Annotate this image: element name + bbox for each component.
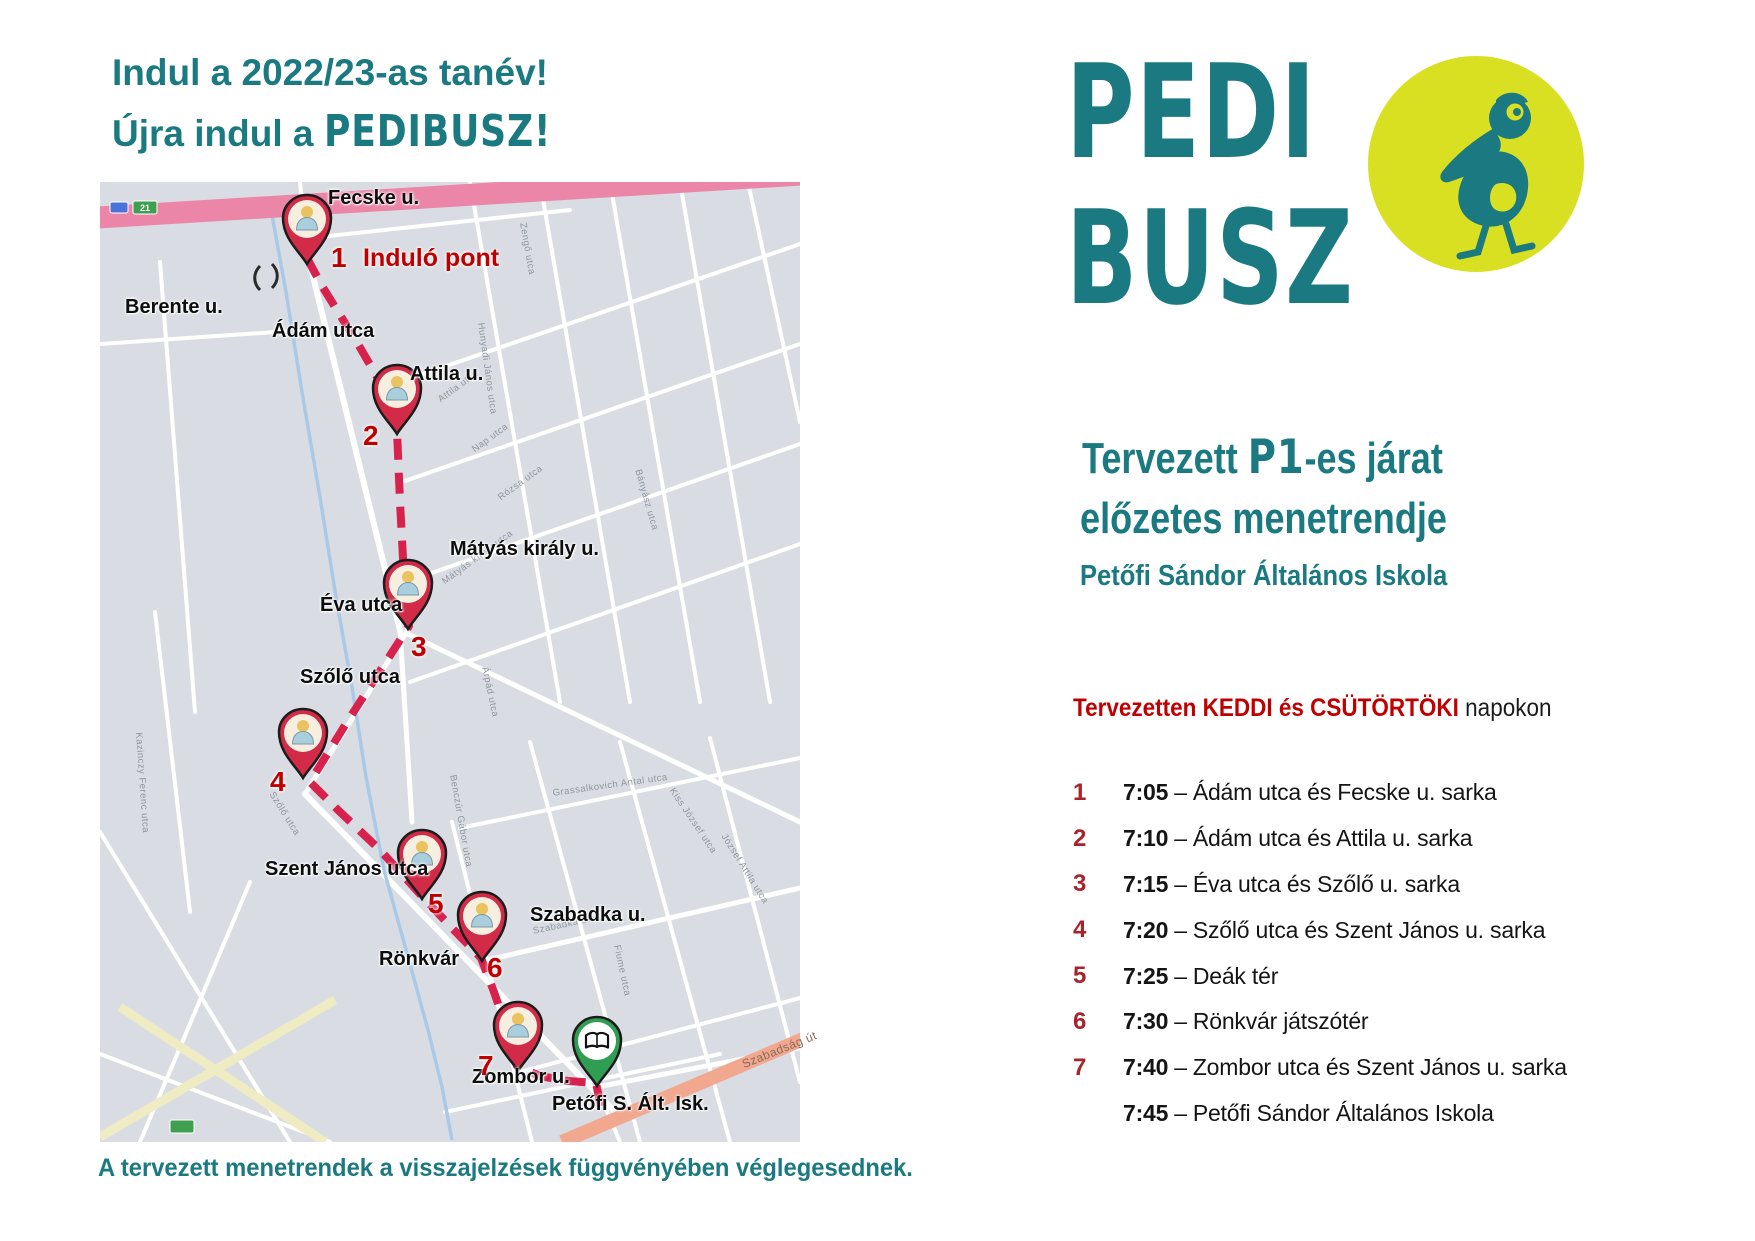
stop-time: 7:10 [1123, 825, 1168, 852]
stop-place: Rönkvár játszótér [1193, 1008, 1369, 1035]
dash-separator: – [1168, 871, 1193, 898]
route-map: 21 Zengő utcaHunyadi János utcaAttila ut… [100, 182, 800, 1142]
stop-time: 7:15 [1123, 871, 1168, 898]
page-title-line2: Újra indul a PEDIBUSZ! [112, 106, 601, 157]
stop-place: Ádám utca és Attila u. sarka [1193, 825, 1473, 852]
route-number: P1 [1248, 430, 1305, 485]
road-shield: 21 [133, 201, 157, 214]
logo-word-1: PEDI [1066, 40, 1354, 186]
stop-number: 6 [1073, 1008, 1123, 1036]
stop-time: 7:30 [1123, 1008, 1168, 1035]
dash-separator: – [1168, 1054, 1193, 1081]
stop-time: 7:40 [1123, 1054, 1168, 1081]
stop-place: Petőfi Sándor Általános Iskola [1193, 1100, 1494, 1127]
plan-heading-line1: Tervezett P1-es járat [1082, 430, 1443, 485]
logo-word-2: BUSZ [1066, 186, 1354, 332]
schedule-row: 27:10–Ádám utca és Attila u. sarka [1073, 816, 1567, 862]
school-name: Petőfi Sándor Általános Iskola [1080, 560, 1447, 593]
pedibusz-flyer: Indul a 2022/23-as tanév! Újra indul a P… [0, 0, 1755, 1241]
pelican-icon [1368, 56, 1584, 272]
logo-badge [1368, 56, 1584, 272]
stop-place: Éva utca és Szőlő u. sarka [1193, 871, 1460, 898]
service-days-rest: napokon [1459, 694, 1552, 722]
service-days-line: Tervezetten KEDDI és CSÜTÖRTÖKI napokon [1073, 694, 1552, 723]
road-shield [110, 202, 128, 213]
stop-number: 5 [1073, 962, 1123, 990]
open-book-icon [586, 1033, 608, 1048]
footer-note: A tervezett menetrendek a visszajelzések… [98, 1154, 913, 1183]
stop-time: 7:05 [1123, 779, 1168, 806]
stop-place: Zombor utca és Szent János u. sarka [1193, 1054, 1567, 1081]
schedule-row: 37:15–Éva utca és Szőlő u. sarka [1073, 862, 1567, 908]
stop-number: 4 [1073, 916, 1123, 944]
schedule-row: 17:05–Ádám utca és Fecske u. sarka [1073, 770, 1567, 816]
schedule-row: 57:25–Deák tér [1073, 953, 1567, 999]
stop-number: 3 [1073, 870, 1123, 898]
stop-place: Deák tér [1193, 963, 1278, 990]
dash-separator: – [1168, 825, 1193, 852]
svg-text:21: 21 [140, 203, 150, 213]
heading-pre: Tervezett [1082, 434, 1248, 483]
page-title-line1: Indul a 2022/23-as tanév! [112, 52, 548, 94]
stop-time: 7:20 [1123, 917, 1168, 944]
stop-number: 1 [1073, 779, 1123, 807]
road-shield [170, 1120, 194, 1133]
schedule-row: 77:40–Zombor utca és Szent János u. sark… [1073, 1045, 1567, 1091]
stop-number: 7 [1073, 1054, 1123, 1082]
heading-post: -es járat [1304, 434, 1442, 483]
dash-separator: – [1168, 963, 1193, 990]
title-line2-prefix: Újra indul a [112, 113, 324, 154]
dash-separator: – [1168, 917, 1193, 944]
stop-place: Szőlő utca és Szent János u. sarka [1193, 917, 1545, 944]
stop-time: 7:45 [1123, 1100, 1168, 1127]
stop-number: 2 [1073, 825, 1123, 853]
dash-separator: – [1168, 1100, 1193, 1127]
route-map-canvas: 21 [100, 182, 800, 1142]
timetable: 17:05–Ádám utca és Fecske u. sarka27:10–… [1073, 770, 1567, 1136]
title-brand-word: PEDIBUSZ! [324, 106, 551, 157]
dash-separator: – [1168, 779, 1193, 806]
stop-place: Ádám utca és Fecske u. sarka [1193, 779, 1497, 806]
service-days-highlight: Tervezetten KEDDI és CSÜTÖRTÖKI [1073, 694, 1459, 722]
schedule-row: 7:45–Petőfi Sándor Általános Iskola [1073, 1091, 1567, 1137]
plan-heading-line2: előzetes menetrendje [1080, 494, 1447, 544]
stop-time: 7:25 [1123, 963, 1168, 990]
schedule-row: 67:30–Rönkvár játszótér [1073, 999, 1567, 1045]
logo-wordmark: PEDI BUSZ [1066, 40, 1354, 331]
dash-separator: – [1168, 1008, 1193, 1035]
schedule-row: 47:20–Szőlő utca és Szent János u. sarka [1073, 907, 1567, 953]
